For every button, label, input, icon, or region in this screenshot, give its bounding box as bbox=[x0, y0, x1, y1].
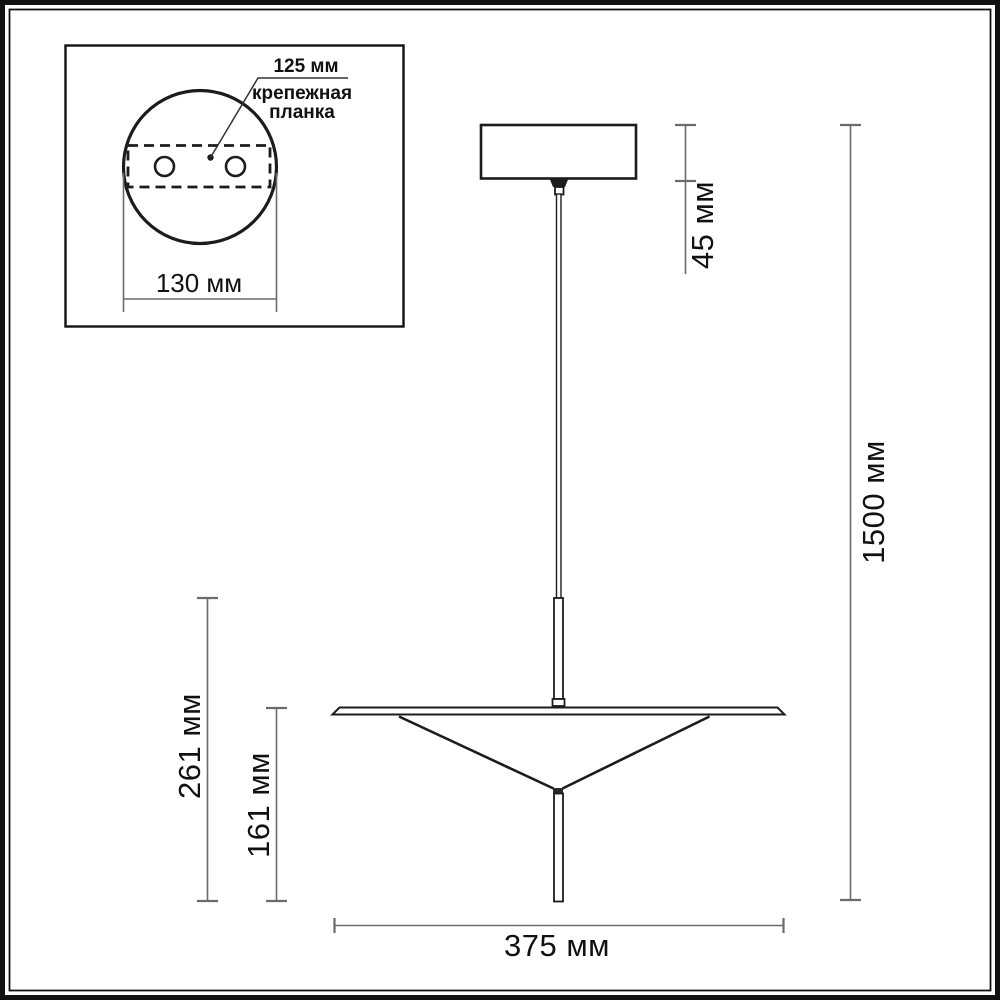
mounting-plate-label-line2: планка bbox=[269, 102, 335, 123]
drawing-svg: 125 мм крепежная планка 130 мм bbox=[0, 0, 1000, 1000]
lamp-dimension-drawing: 125 мм крепежная планка 130 мм bbox=[0, 0, 1000, 1000]
plate-width-label: 130 мм bbox=[156, 268, 242, 298]
hole-spacing-label: 125 мм bbox=[273, 56, 338, 77]
shade-disc bbox=[333, 708, 785, 715]
screw-hole-left bbox=[155, 157, 174, 176]
suspension-wire bbox=[557, 194, 562, 598]
upper-stem-foot bbox=[553, 699, 565, 706]
shade-width-label: 375 мм bbox=[504, 928, 610, 963]
canopy-drop-label: 45 мм bbox=[685, 181, 720, 269]
canopy-outline bbox=[481, 125, 636, 179]
top-view-inset: 125 мм крепежная планка 130 мм bbox=[66, 46, 404, 327]
mounting-plate-label-line1: крепежная bbox=[252, 83, 352, 104]
fixture-height-label: 261 мм bbox=[172, 693, 207, 799]
overall-height-label: 1500 мм bbox=[856, 440, 891, 564]
shade-height-label: 161 мм bbox=[241, 752, 276, 858]
lower-stem bbox=[554, 794, 563, 902]
screw-hole-right bbox=[226, 157, 245, 176]
upper-stem bbox=[554, 598, 563, 699]
